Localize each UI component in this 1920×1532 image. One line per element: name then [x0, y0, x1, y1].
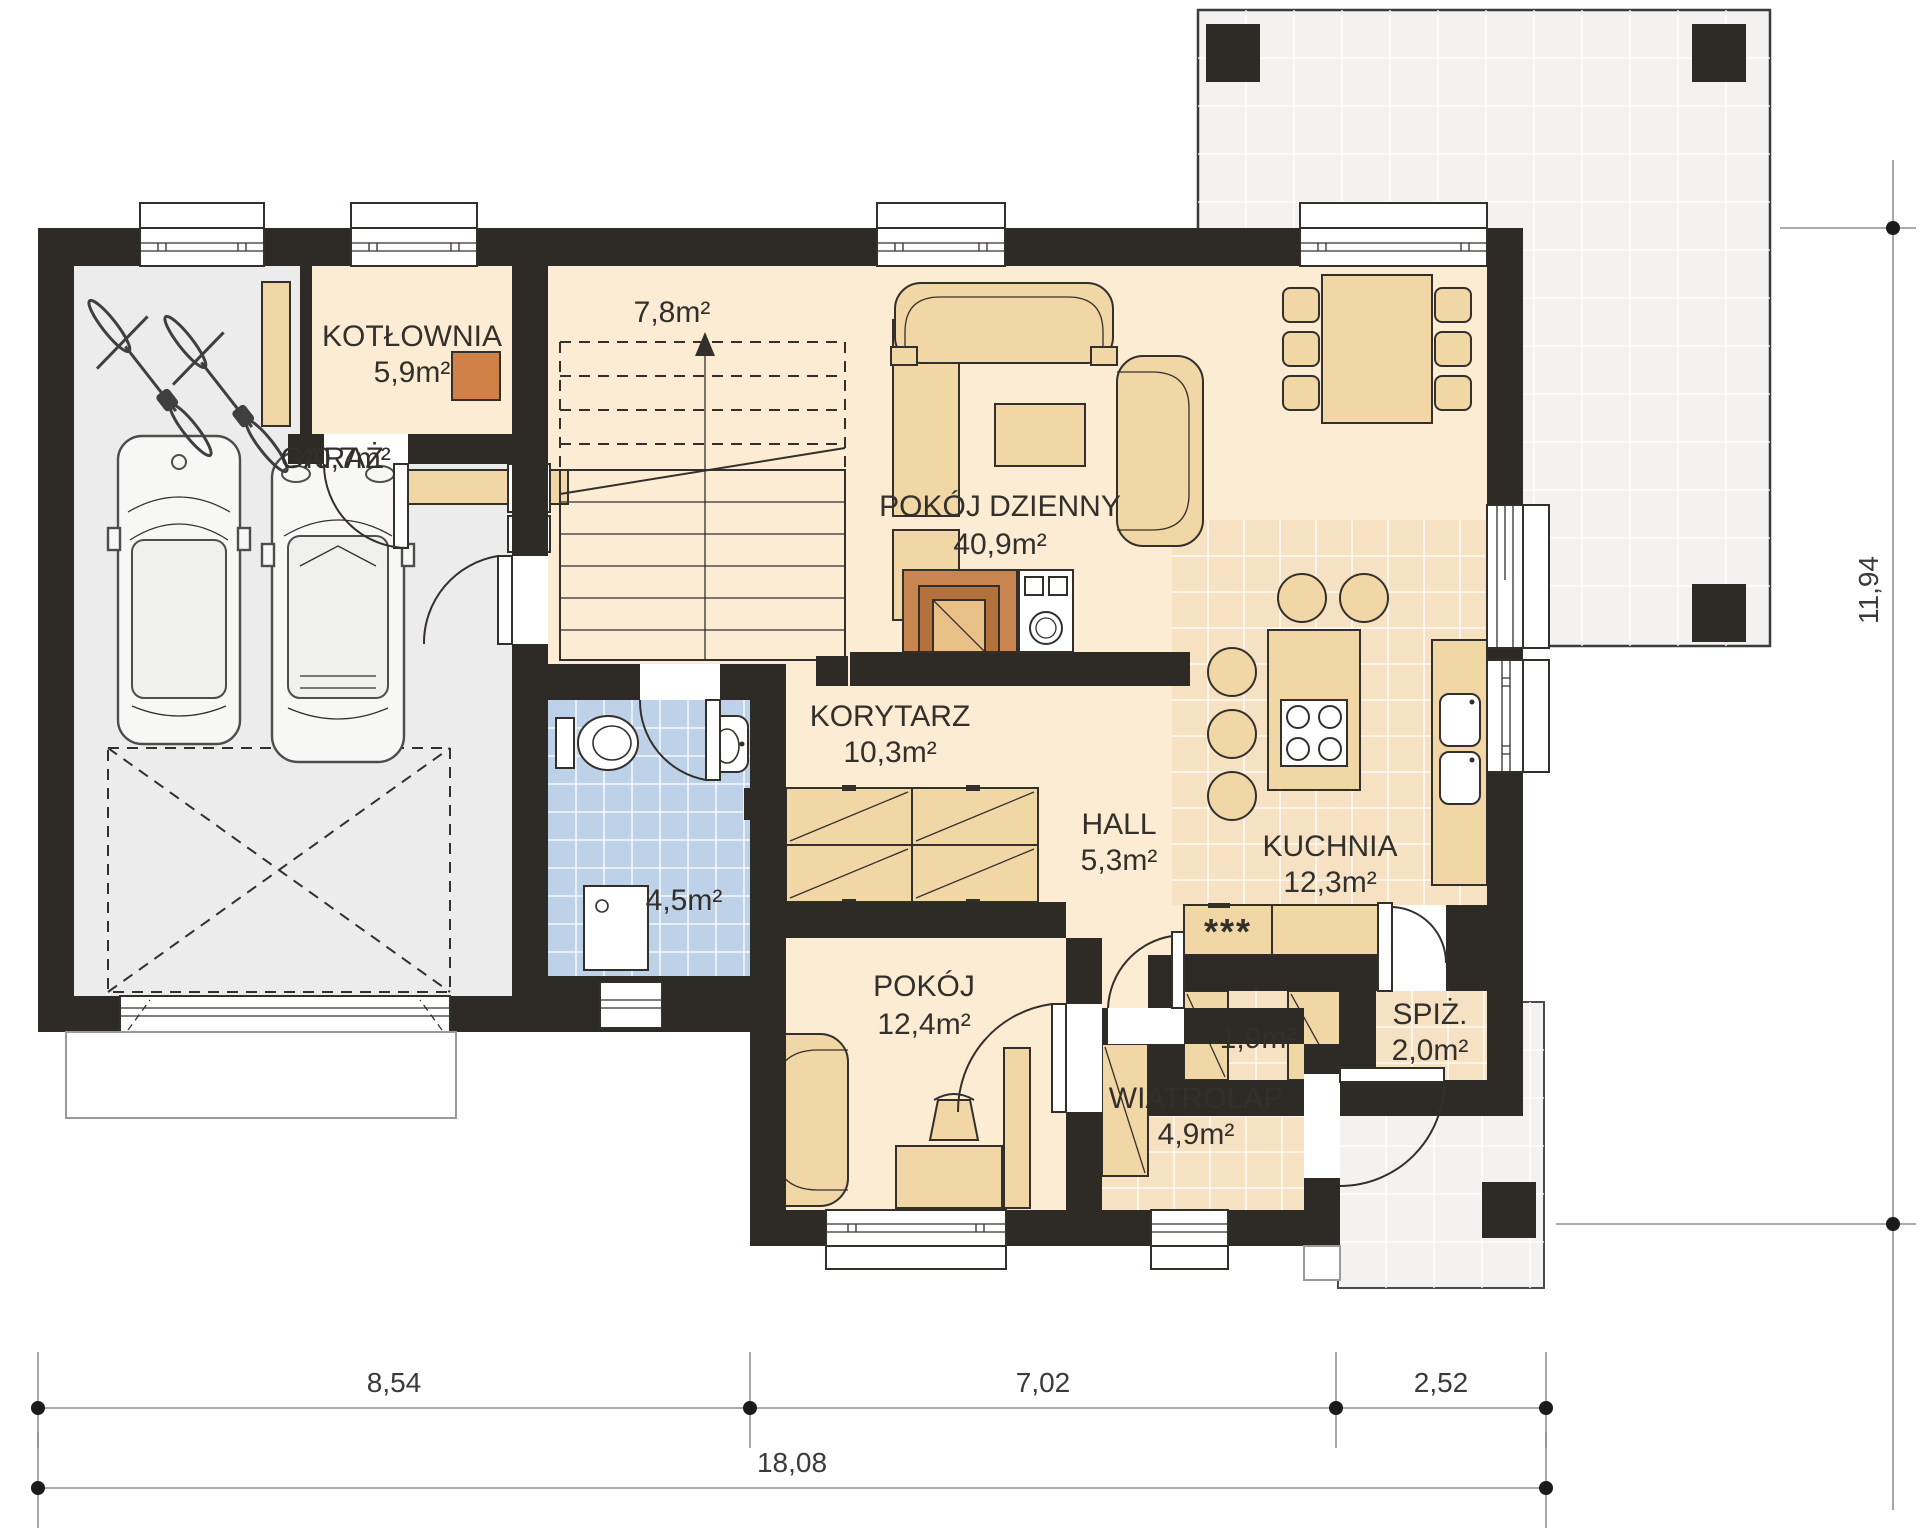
- label-garaz-area: 40,7m²: [297, 442, 390, 475]
- label-kotlownia: KOTŁOWNIA: [322, 320, 502, 353]
- label-pokoj-dzienny-area: 40,9m²: [953, 528, 1046, 561]
- driveway-apron: [66, 1032, 456, 1118]
- label-wiatrolap: WIATROŁAP: [1109, 1082, 1283, 1115]
- label-spizarnia: SPIŻ.: [1392, 998, 1467, 1031]
- toilet: [556, 716, 638, 770]
- label-pokoj-dzienny: POKÓJ DZIENNY: [879, 490, 1121, 523]
- bathroom-window: [600, 982, 662, 1028]
- desk-chair: [930, 1094, 978, 1140]
- label-wiatrolap-area: 4,9m²: [1158, 1118, 1235, 1151]
- label-schody-area: 7,8m²: [634, 296, 711, 329]
- label-pokoj-area: 12,4m²: [877, 1008, 970, 1041]
- label-korytarz: KORYTARZ: [810, 700, 971, 733]
- kitchen-sink-counter: [1432, 640, 1487, 885]
- window: [351, 203, 477, 266]
- window: [1300, 203, 1487, 266]
- dining-table-set: [1283, 275, 1471, 423]
- car-1: [108, 436, 250, 744]
- garage-door: [120, 996, 450, 1032]
- bar-stool: [1208, 648, 1256, 696]
- dining-chair: [1283, 332, 1319, 366]
- dining-chair: [1435, 376, 1471, 410]
- bar-stool: [1340, 574, 1388, 622]
- terrace-post-top-left: [1206, 24, 1260, 82]
- label-lazienka-area: 4,5m²: [646, 884, 723, 917]
- dining-chair: [1435, 332, 1471, 366]
- dim-total: 18,08: [757, 1447, 827, 1478]
- corridor-wardrobe: [786, 785, 1038, 905]
- bar-stool: [1208, 772, 1256, 820]
- label-kotlownia-area: 5,9m²: [374, 356, 451, 389]
- wiatrolap-window: [1151, 1210, 1228, 1269]
- column: [816, 656, 848, 686]
- label-kuchnia-area: 12,3m²: [1283, 866, 1376, 899]
- sofa-large: [891, 283, 1117, 365]
- dining-chair: [1283, 376, 1319, 410]
- floor-plan-page: KOTŁOWNIA 5,9m² GARAŻ 40,7m² 7,8m² POKÓJ…: [0, 0, 1920, 1532]
- window: [140, 203, 264, 266]
- kitchen-window: [1487, 660, 1549, 772]
- label-hall-area: 5,3m²: [1081, 844, 1158, 877]
- entrance-step: [1304, 1246, 1340, 1280]
- door-kitchen-pantry: [1378, 903, 1446, 991]
- window: [877, 203, 1005, 266]
- dim-segment-3: 2,52: [1414, 1367, 1469, 1398]
- dimension-lines-bottom: 8,54 7,02 2,52 18,08: [31, 1352, 1553, 1528]
- dim-segment-1: 8,54: [367, 1367, 422, 1398]
- label-appliance-marker: ***: [1204, 911, 1252, 952]
- floor-plan-drawing: KOTŁOWNIA 5,9m² GARAŻ 40,7m² 7,8m² POKÓJ…: [0, 0, 1920, 1532]
- bar-stool: [1278, 574, 1326, 622]
- kitchen-island: [1268, 630, 1360, 790]
- shower: [584, 886, 648, 970]
- terrace-sliding-door: [1487, 505, 1549, 648]
- label-hall: HALL: [1081, 808, 1156, 841]
- dining-chair: [1435, 288, 1471, 322]
- label-garderoba-area: 1,9m²: [1220, 1022, 1297, 1055]
- dim-segment-2: 7,02: [1016, 1367, 1071, 1398]
- terrace-post-top-right: [1692, 24, 1746, 82]
- label-pokoj: POKÓJ: [873, 970, 975, 1003]
- porch-post: [1482, 1182, 1536, 1238]
- dim-right-height: 11,94: [1853, 556, 1884, 624]
- coffee-table: [995, 404, 1085, 466]
- terrace-post-bottom-right: [1692, 584, 1746, 642]
- bar-stool: [1208, 710, 1256, 758]
- car-2: [262, 452, 414, 762]
- label-kuchnia: KUCHNIA: [1262, 830, 1397, 863]
- sofa-small: [1117, 356, 1203, 546]
- stove-appliance: [1019, 570, 1073, 652]
- label-spizarnia-area: 2,0m²: [1392, 1034, 1469, 1067]
- garage-shelf-vertical: [262, 282, 290, 426]
- label-korytarz-area: 10,3m²: [843, 736, 936, 769]
- dining-table: [1322, 275, 1432, 423]
- dining-chair: [1283, 288, 1319, 322]
- boiler: [452, 352, 500, 400]
- pokoj-window: [826, 1210, 1006, 1269]
